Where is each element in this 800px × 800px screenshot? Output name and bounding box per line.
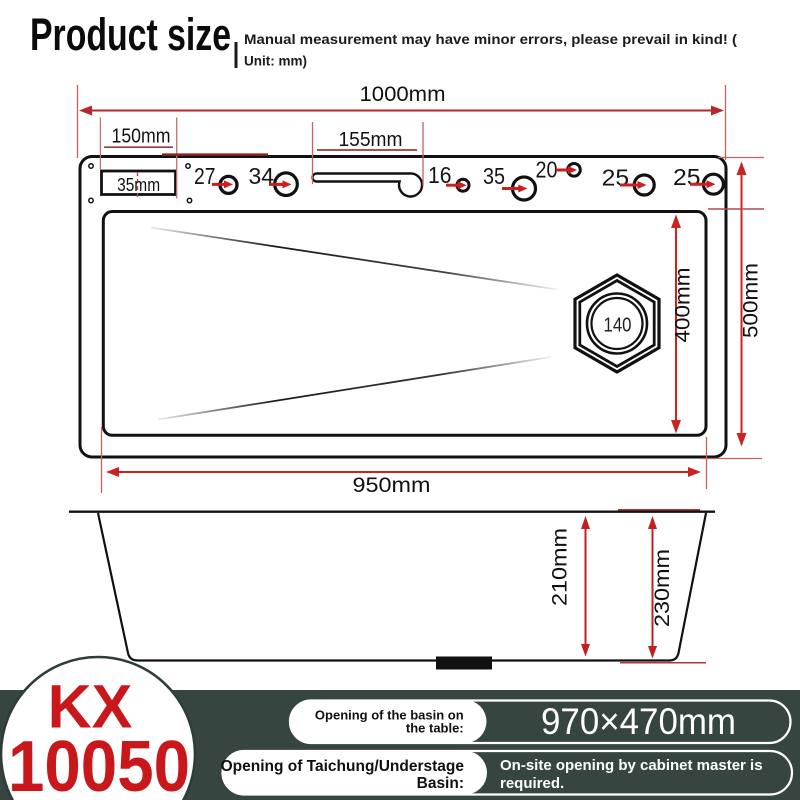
- svg-text:35mm: 35mm: [117, 175, 160, 195]
- svg-text:Manual measurement may have mi: Manual measurement may have minor errors…: [244, 32, 738, 47]
- svg-text:400mm: 400mm: [672, 268, 695, 343]
- svg-text:140: 140: [604, 315, 632, 337]
- svg-text:950mm: 950mm: [353, 474, 431, 497]
- svg-text:500mm: 500mm: [740, 263, 763, 338]
- svg-text:970×470mm: 970×470mm: [541, 701, 736, 742]
- svg-text:35: 35: [483, 163, 505, 189]
- svg-text:On-site opening by cabinet mas: On-site opening by cabinet master is: [500, 757, 763, 774]
- svg-text:155mm: 155mm: [339, 129, 403, 151]
- svg-text:150mm: 150mm: [112, 125, 171, 147]
- svg-text:required.: required.: [500, 775, 564, 792]
- svg-text:25: 25: [602, 165, 630, 191]
- svg-text:1000mm: 1000mm: [360, 83, 446, 106]
- svg-text:25: 25: [673, 164, 701, 190]
- svg-text:Unit: mm): Unit: mm): [244, 54, 307, 69]
- svg-text:210mm: 210mm: [549, 528, 572, 606]
- svg-text:Product size: Product size: [30, 9, 231, 60]
- svg-text:230mm: 230mm: [651, 549, 674, 627]
- svg-text:20: 20: [536, 157, 558, 183]
- svg-text:the table:: the table:: [406, 721, 464, 736]
- svg-text:Basin:: Basin:: [417, 775, 464, 792]
- svg-text:Opening of Taichung/Understage: Opening of Taichung/Understage: [221, 758, 465, 775]
- svg-text:10050: 10050: [8, 727, 190, 800]
